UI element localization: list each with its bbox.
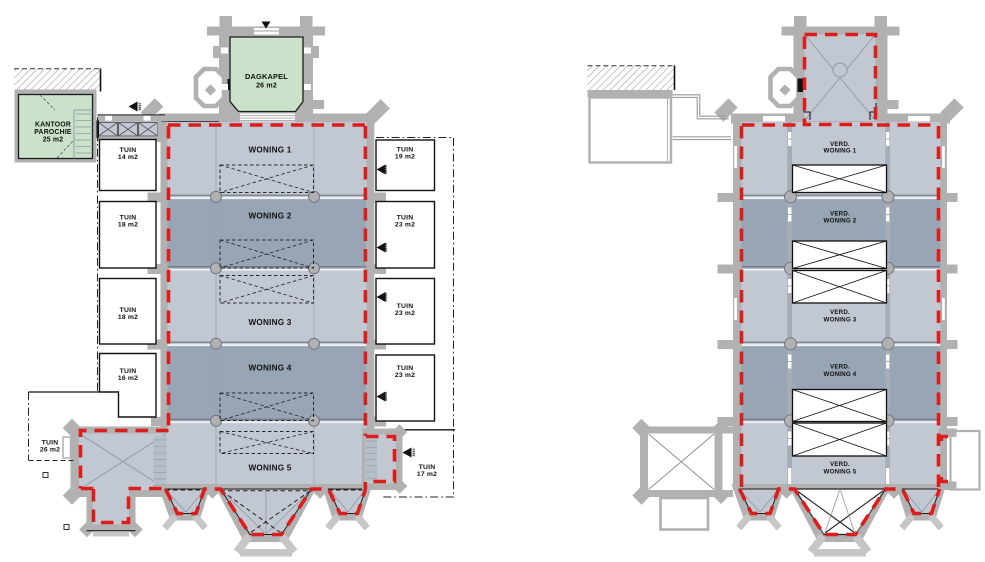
svg-text:TUIN: TUIN [397, 215, 414, 222]
svg-text:WONING 4: WONING 4 [824, 371, 857, 378]
svg-text:18 m2: 18 m2 [118, 314, 138, 321]
svg-text:26 m2: 26 m2 [256, 83, 277, 90]
svg-text:TUIN: TUIN [42, 440, 59, 447]
svg-text:WONING 4: WONING 4 [249, 364, 292, 373]
svg-text:VERD.: VERD. [830, 364, 850, 371]
svg-text:3860: 3860 [138, 102, 142, 110]
svg-text:23 m2: 23 m2 [395, 310, 415, 317]
svg-text:3860: 3860 [384, 392, 388, 401]
svg-text:TUIN: TUIN [120, 307, 137, 314]
svg-text:3860: 3860 [384, 292, 388, 301]
svg-text:17 m2: 17 m2 [417, 471, 437, 478]
svg-text:23 m2: 23 m2 [395, 372, 415, 379]
svg-text:VERD.: VERD. [830, 210, 850, 217]
svg-text:WONING 1: WONING 1 [824, 148, 857, 155]
svg-text:TUIN: TUIN [397, 365, 414, 372]
svg-text:3860: 3860 [384, 165, 388, 174]
svg-text:TUIN: TUIN [419, 464, 436, 471]
svg-text:3860: 3860 [412, 448, 416, 456]
svg-text:VERD.: VERD. [830, 309, 850, 316]
svg-text:19 m2: 19 m2 [395, 154, 415, 161]
svg-text:26 m2: 26 m2 [40, 447, 60, 454]
svg-text:TUIN: TUIN [397, 303, 414, 310]
svg-text:TUIN: TUIN [120, 368, 137, 375]
svg-text:TUIN: TUIN [397, 147, 414, 154]
svg-text:WONING 2: WONING 2 [824, 217, 857, 224]
svg-text:16 m2: 16 m2 [118, 375, 138, 382]
svg-text:WONING 2: WONING 2 [249, 212, 292, 221]
svg-text:WONING 5: WONING 5 [249, 464, 292, 473]
svg-text:18 m2: 18 m2 [118, 222, 138, 229]
svg-text:VERD.: VERD. [830, 461, 850, 468]
svg-text:WONING 3: WONING 3 [249, 318, 292, 327]
svg-text:PAROCHIE: PAROCHIE [34, 129, 72, 136]
svg-text:TUIN: TUIN [120, 147, 137, 154]
svg-text:23 m2: 23 m2 [395, 222, 415, 229]
svg-text:25 m2: 25 m2 [43, 137, 64, 144]
svg-text:14 m2: 14 m2 [118, 154, 138, 161]
svg-text:KANTOOR: KANTOOR [35, 122, 71, 129]
svg-text:3860: 3860 [384, 243, 388, 252]
svg-text:WONING 1: WONING 1 [249, 146, 292, 155]
svg-text:DAGKAPEL: DAGKAPEL [245, 72, 288, 81]
svg-text:WONING 5: WONING 5 [824, 469, 857, 476]
svg-text:WONING 3: WONING 3 [824, 317, 857, 324]
svg-text:TUIN: TUIN [120, 215, 137, 222]
